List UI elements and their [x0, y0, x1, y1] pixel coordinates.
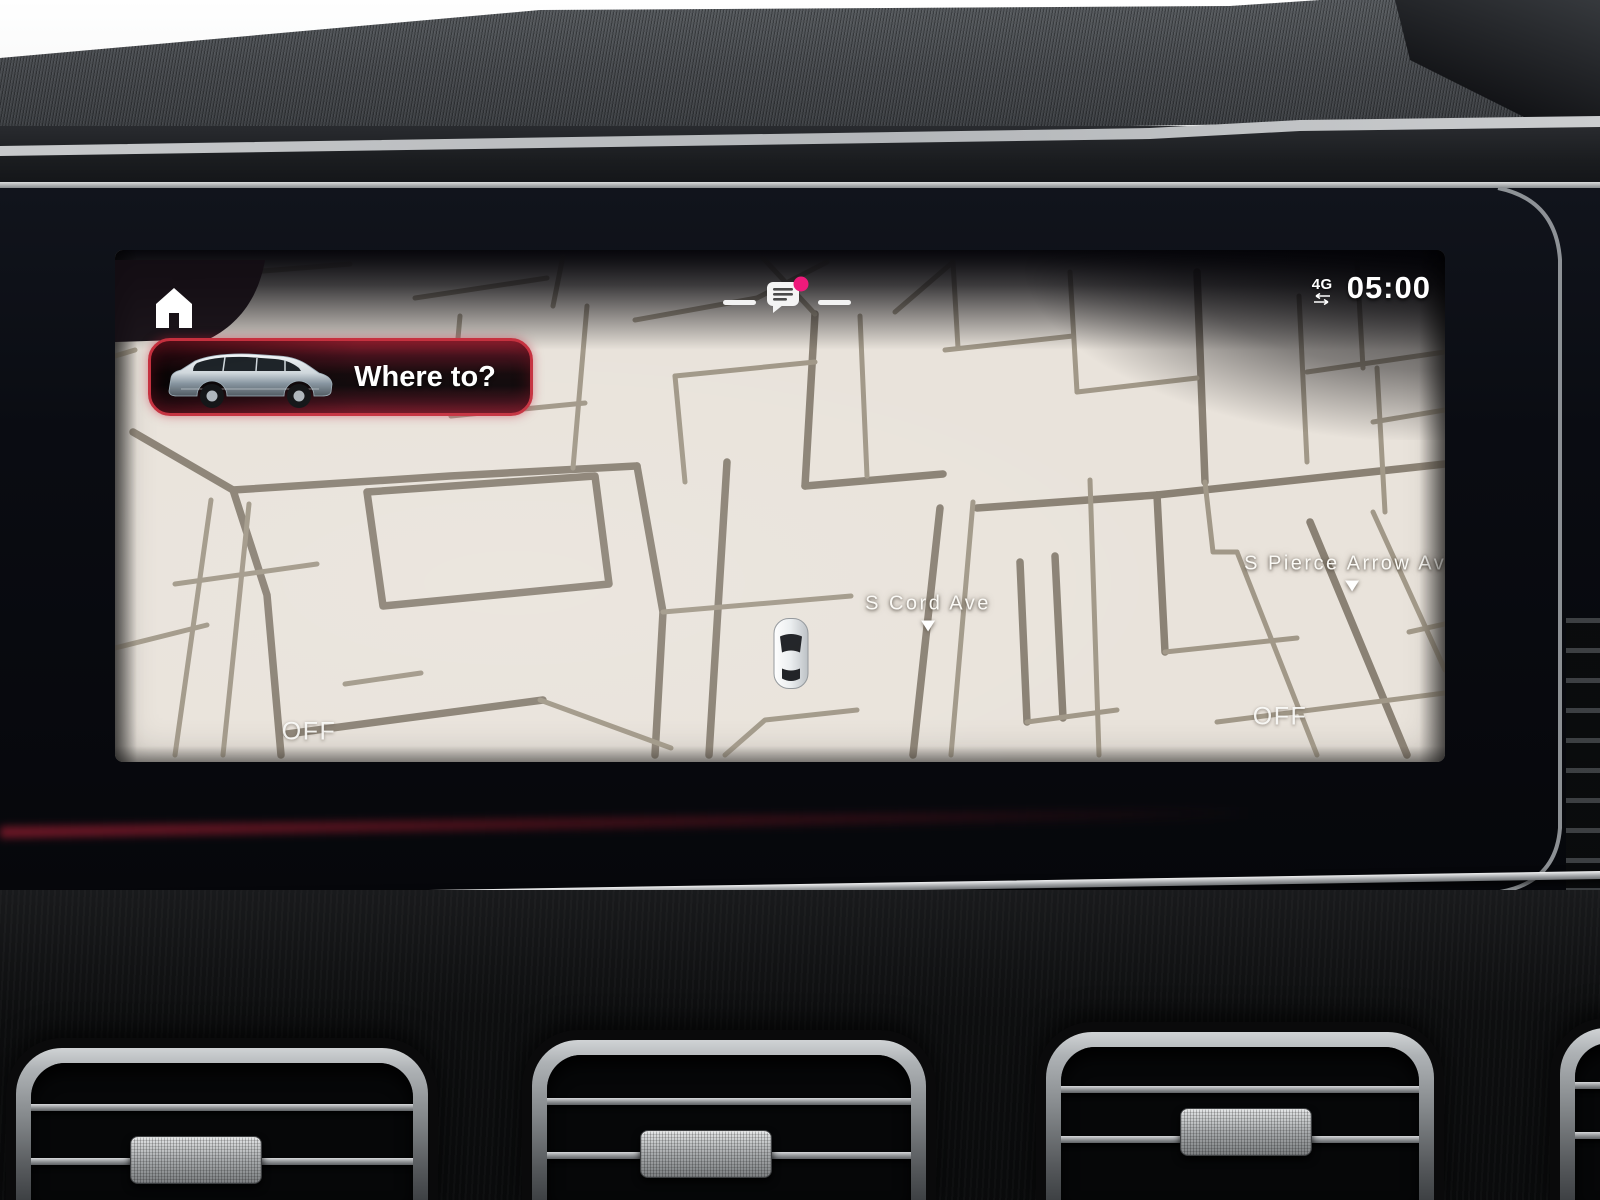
map-road: [1217, 693, 1445, 722]
notification-dot: [794, 277, 809, 292]
map-road: [805, 474, 943, 486]
map-road: [233, 490, 281, 755]
map-road: [1157, 495, 1165, 652]
map-road: [175, 564, 317, 584]
vent-adjuster-tab: [130, 1136, 262, 1184]
street-label-arrow-icon: [921, 621, 935, 632]
status-cluster: 4G 05:00: [1312, 270, 1431, 306]
map-road: [133, 432, 233, 490]
street-label-arrow-icon: [1345, 581, 1359, 592]
vent-adjuster-tab: [640, 1130, 772, 1178]
map-road: [223, 504, 249, 755]
map-road: [1020, 562, 1027, 722]
vent-slat: [1575, 1132, 1600, 1139]
map-road: [540, 700, 671, 748]
map-off-label: OFF: [1253, 703, 1308, 732]
vent-slat: [1061, 1086, 1419, 1093]
handle-bar-right: [818, 300, 851, 305]
map-road: [637, 466, 663, 755]
map-road: [913, 508, 940, 755]
vent-interior: [1061, 1047, 1419, 1200]
map-road: [675, 362, 815, 376]
network-indicator: 4G: [1312, 276, 1333, 305]
vent-slat: [547, 1098, 911, 1105]
air-vent-center: [532, 1040, 926, 1200]
where-to-label: Where to?: [344, 361, 516, 394]
message-bubble-icon: [765, 276, 809, 314]
notification-handle[interactable]: [723, 276, 851, 314]
map-off-label: OFF: [282, 718, 337, 747]
screen-bottom-shadow: [115, 746, 1445, 762]
map-road: [675, 376, 685, 482]
vent-slat: [1575, 1082, 1600, 1089]
vehicle-position-icon: [771, 617, 811, 696]
vent-adjuster-tab: [1180, 1108, 1312, 1156]
vent-interior: [31, 1063, 413, 1200]
map-road: [1157, 464, 1445, 495]
map-road: [1027, 710, 1117, 722]
screen-right-shadow: [1419, 250, 1445, 762]
where-to-button[interactable]: Where to?: [148, 338, 533, 416]
infotainment-display: S Cord AveS Pierce Arrow AveOFFOFF: [115, 250, 1445, 762]
map-road: [345, 673, 421, 684]
street-label: S Cord Ave: [865, 593, 991, 632]
vent-interior: [1575, 1043, 1600, 1200]
street-label: S Pierce Arrow Ave: [1244, 553, 1445, 592]
clock: 05:00: [1347, 270, 1431, 306]
vent-interior: [547, 1055, 911, 1200]
map-road: [663, 596, 851, 612]
map-road: [1055, 556, 1063, 718]
air-vent-far-right: [1560, 1028, 1600, 1200]
network-label: 4G: [1312, 276, 1333, 293]
map-road: [367, 476, 609, 606]
dashboard-photo: S Cord AveS Pierce Arrow AveOFFOFF: [0, 0, 1600, 1200]
vent-slat: [31, 1104, 413, 1111]
air-vent-left: [16, 1048, 428, 1200]
data-transfer-icon: [1312, 293, 1332, 305]
home-icon: [151, 284, 197, 330]
suv-thumbnail: [159, 345, 344, 409]
map-road: [977, 495, 1157, 508]
home-button[interactable]: [115, 260, 267, 342]
handle-bar-left: [723, 300, 756, 305]
air-vent-right: [1046, 1032, 1434, 1200]
